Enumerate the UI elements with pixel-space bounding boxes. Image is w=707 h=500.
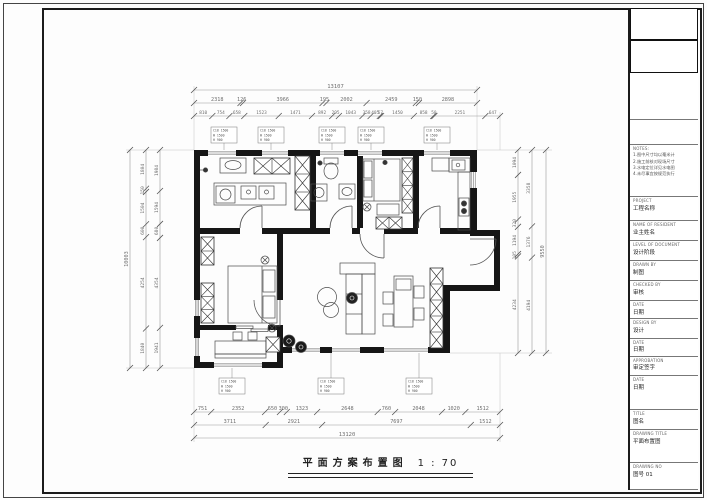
- dimension-value: 1450: [392, 110, 403, 116]
- callout-text: C18 1500: [321, 129, 336, 133]
- dimension-value: 650: [268, 406, 277, 412]
- title-block-cell-value: 日期: [633, 385, 695, 392]
- title-block-cell-label: PROJECT: [633, 199, 695, 204]
- callout-text: C18 1500: [221, 380, 236, 384]
- callout-text: C18 1500: [320, 380, 335, 384]
- callout-text: W 1500: [260, 133, 272, 137]
- callout-text: W 1500: [221, 384, 233, 388]
- dimension-value: 1955: [512, 191, 518, 202]
- dimension-value: 751: [198, 406, 207, 412]
- title-block-cell-12: DATE日期: [630, 339, 698, 357]
- dimension-value: 2921: [288, 419, 301, 425]
- window-callout: C18 1500W 1500H 900: [406, 353, 432, 394]
- callout-text: H 900: [320, 389, 330, 393]
- dimension-value: 2648: [341, 406, 354, 412]
- title-block-cell-label: DRAWING TITLE: [633, 432, 695, 437]
- dimension-value: 1512: [479, 419, 492, 425]
- dim-row-left-col1: 1804150150460042541840: [140, 147, 149, 371]
- title-block-cell-label: LEVEL OF DOCUMENT: [633, 243, 695, 248]
- dimension-value: 126: [237, 97, 246, 103]
- title-block-cell-label: NAME OF RESIDENT: [633, 223, 695, 228]
- dimension-value: 754: [217, 110, 225, 116]
- living-room-furniture: [318, 263, 376, 334]
- window-callout: C18 1500W 1500H 900: [318, 353, 344, 394]
- dimension-value: 1840: [140, 342, 146, 353]
- dimension-value: 7697: [390, 419, 403, 425]
- dimension-value: 1523: [256, 110, 267, 116]
- dimension-value: 295: [332, 110, 340, 116]
- title-block-cell-value: 工程名称: [633, 206, 695, 213]
- dimension-value: 1512: [476, 406, 489, 412]
- dining-set: [383, 276, 424, 327]
- dimension-value: 9550: [540, 245, 546, 258]
- dimension-value: 3358: [526, 182, 532, 193]
- dimension-value: 600: [140, 226, 146, 235]
- dim-row-left-overall: 10003: [124, 147, 133, 371]
- title-block-cell-14: DATE日期: [630, 376, 698, 410]
- title-block-cell-value: 图号 01: [633, 472, 695, 479]
- dim-row-bottom-row1: 751235265030013232648760204810201512: [191, 406, 503, 415]
- dimension-value: 2251: [455, 110, 466, 116]
- dimension-value: 1094: [512, 157, 518, 168]
- dimension-value: 57: [378, 110, 384, 116]
- callout-text: W 1500: [360, 133, 372, 137]
- callout-text: C18 1500: [360, 129, 375, 133]
- dimension-value: 1984: [154, 165, 160, 176]
- title-block-cell-9: CHECKED BY审核: [630, 281, 698, 301]
- dimension-value: 810: [199, 110, 207, 116]
- title-block-cell-label: DRAWN BY: [633, 263, 695, 268]
- title-block-cell-1: [630, 40, 698, 73]
- title-block-cell-value: 业主姓名: [633, 230, 695, 237]
- title-block-cell-value: 设计: [633, 328, 695, 335]
- dimension-value: 3966: [277, 97, 290, 103]
- drawing-title-bar: 平面方案布置图1 : 70: [288, 451, 473, 478]
- floor-plan-canvas: 1310723181263966195200224591502898810754…: [0, 0, 707, 500]
- callout-text: C18 1500: [408, 380, 423, 384]
- dimension-value: 13107: [327, 84, 344, 90]
- title-block-cell-3: [630, 120, 698, 146]
- dim-row-left-col2: 1984159468043541941: [154, 147, 163, 371]
- title-block-cell-label: DRAWING NO: [633, 465, 695, 470]
- drawing-title-text: 平面方案布置图: [303, 458, 408, 469]
- dimension-value: 4234: [512, 299, 518, 310]
- title-block-cell-13: APPROBATION审定签字: [630, 357, 698, 377]
- window-callout: C18 1500W 1500H 900: [358, 127, 384, 150]
- window-callout: C18 1500W 1500H 900: [258, 127, 284, 150]
- title-block-cell-label: DESIGN BY: [633, 321, 695, 326]
- title-block-cell-value: 制图: [633, 270, 695, 277]
- dimension-value: 1020: [447, 406, 460, 412]
- title-block-cell-value: 1.图中尺寸均以毫米计 2.施工前核对现场尺寸 3.水电定位详见水电图 4.未尽…: [633, 152, 695, 177]
- title-block-cell-6: NAME OF RESIDENT业主姓名: [630, 221, 698, 241]
- dim-row-right-col2: 335813764194: [526, 147, 535, 356]
- dim-row-top-overall: 13107: [191, 84, 480, 93]
- callout-text: H 900: [260, 138, 270, 142]
- dimension-value: 760: [382, 406, 391, 412]
- title-block-cell-label: TITLE: [633, 412, 695, 417]
- title-block-cell-value: 审定签字: [633, 365, 695, 372]
- dimension-value: 358: [363, 110, 371, 116]
- title-block-cell-value: 平面布置图: [633, 439, 695, 446]
- dimension-value: 858: [420, 110, 428, 116]
- title-block-cell-value: 设计阶段: [633, 250, 695, 257]
- dimension-value: 658: [233, 110, 241, 116]
- dimension-value: 320: [512, 219, 518, 228]
- dimension-value: 1504: [140, 202, 146, 213]
- window-callout: C18 1500W 1500H 900: [424, 127, 450, 150]
- callout-text: W 1500: [408, 384, 420, 388]
- title-block-cell-label: DATE: [633, 303, 695, 308]
- window-callout: C18 1500W 1500H 900: [219, 368, 245, 394]
- callout-text: W 1500: [321, 133, 333, 137]
- cabinet-hatching: [201, 156, 443, 352]
- balcony-furniture: [215, 332, 307, 358]
- title-block-cell-label: APPROBATION: [633, 359, 695, 364]
- callout-text: H 900: [426, 138, 436, 142]
- dimension-value: 892: [318, 110, 326, 116]
- dimension-value: 1471: [290, 110, 301, 116]
- title-block-cell-value: 审核: [633, 290, 695, 297]
- dim-row-right-col1: 1094195532011941054234: [512, 147, 521, 356]
- bathroom-fixtures: [311, 158, 355, 201]
- title-block-cell-value: 图名: [633, 419, 695, 426]
- kitchen-fixtures: [432, 158, 470, 230]
- bedroom2-furniture: [363, 159, 400, 215]
- title-block-cell-label: DATE: [633, 341, 695, 346]
- dimension-value: 1043: [345, 110, 356, 116]
- title-block-cell-15: TITLE图名: [630, 410, 698, 430]
- title-block-cell-8: DRAWN BY制图: [630, 261, 698, 281]
- window-callout: C18 1500W 1500H 900: [319, 127, 345, 150]
- dimension-value: 1804: [140, 164, 146, 175]
- callout-text: H 900: [321, 138, 331, 142]
- dim-row-top-row2: 23181263966195200224591502898: [191, 97, 480, 106]
- dimension-value: 1941: [154, 342, 160, 353]
- dimension-value: 1594: [154, 202, 160, 213]
- dimension-value: 647: [489, 110, 497, 116]
- callout-text: C18 1500: [426, 129, 441, 133]
- dimension-value: 13120: [339, 432, 356, 438]
- title-block-cell-label: DATE: [633, 378, 695, 383]
- title-block-cell-16: DRAWING TITLE平面布置图: [630, 430, 698, 463]
- master-bedroom-furniture: [228, 256, 277, 332]
- callout-text: H 900: [408, 389, 418, 393]
- callout-text: H 900: [213, 138, 223, 142]
- dimension-value: 4254: [140, 277, 146, 288]
- dim-row-top-row3: 8107546581523147189229510433584055714508…: [191, 110, 503, 119]
- dimension-value: 4354: [154, 277, 160, 288]
- title-block-cell-10: DATE日期: [630, 301, 698, 319]
- drawing-sheet: 1310723181263966195200224591502898810754…: [0, 0, 707, 500]
- dimension-value: 4194: [526, 300, 532, 311]
- drawing-scale: 1 : 70: [418, 458, 459, 469]
- dimension-value: 1194: [512, 235, 518, 246]
- title-block-cell-17: DRAWING NO图号 01: [630, 463, 698, 490]
- dim-row-right-overall: 9550: [540, 147, 549, 356]
- callout-text: C18 1500: [213, 129, 228, 133]
- dim-row-bottom-row2: 3711292176971512: [191, 419, 503, 428]
- title-block-cell-2: [630, 73, 698, 120]
- dimension-value: 2352: [232, 406, 245, 412]
- dimension-value: 2002: [340, 97, 353, 103]
- title-underline: [288, 473, 473, 478]
- dimension-value: 2898: [442, 97, 455, 103]
- dimension-value: 2459: [385, 97, 398, 103]
- title-block: NOTES:1.图中尺寸均以毫米计 2.施工前核对现场尺寸 3.水电定位详见水电…: [628, 8, 698, 490]
- callout-text: W 1500: [426, 133, 438, 137]
- title-block-cell-value: 日期: [633, 347, 695, 354]
- title-block-cell-5: PROJECT工程名称: [630, 197, 698, 221]
- dimension-value: 10003: [124, 251, 130, 267]
- dimension-value: 50: [431, 110, 437, 116]
- window-callout: C18 1500W 1500H 900: [211, 127, 237, 150]
- dimension-value: 2318: [211, 97, 224, 103]
- dimension-value: 150: [413, 97, 422, 103]
- dim-row-bottom-overall: 13120: [191, 432, 503, 441]
- dimension-value: 3711: [224, 419, 237, 425]
- dimension-value: 105: [512, 251, 518, 260]
- dimension-value: 2048: [412, 406, 425, 412]
- callout-text: W 1500: [213, 133, 225, 137]
- dimension-value: 195: [320, 97, 329, 103]
- title-block-cell-0: [630, 8, 698, 40]
- dimension-value: 150: [140, 186, 146, 195]
- title-block-cell-value: 日期: [633, 310, 695, 317]
- callout-text: H 900: [360, 138, 370, 142]
- title-block-cell-7: LEVEL OF DOCUMENT设计阶段: [630, 241, 698, 261]
- dimension-value: 1376: [526, 236, 532, 247]
- title-block-cell-4: NOTES:1.图中尺寸均以毫米计 2.施工前核对现场尺寸 3.水电定位详见水电…: [630, 145, 698, 197]
- title-block-cell-11: DESIGN BY设计: [630, 319, 698, 339]
- title-block-cell-label: CHECKED BY: [633, 283, 695, 288]
- callout-text: C18 1500: [260, 129, 275, 133]
- dimension-value: 300: [279, 406, 288, 412]
- dimension-value: 1323: [296, 406, 309, 412]
- callout-text: H 900: [221, 389, 231, 393]
- dimension-value: 680: [154, 227, 160, 236]
- callout-text: W 1500: [320, 384, 332, 388]
